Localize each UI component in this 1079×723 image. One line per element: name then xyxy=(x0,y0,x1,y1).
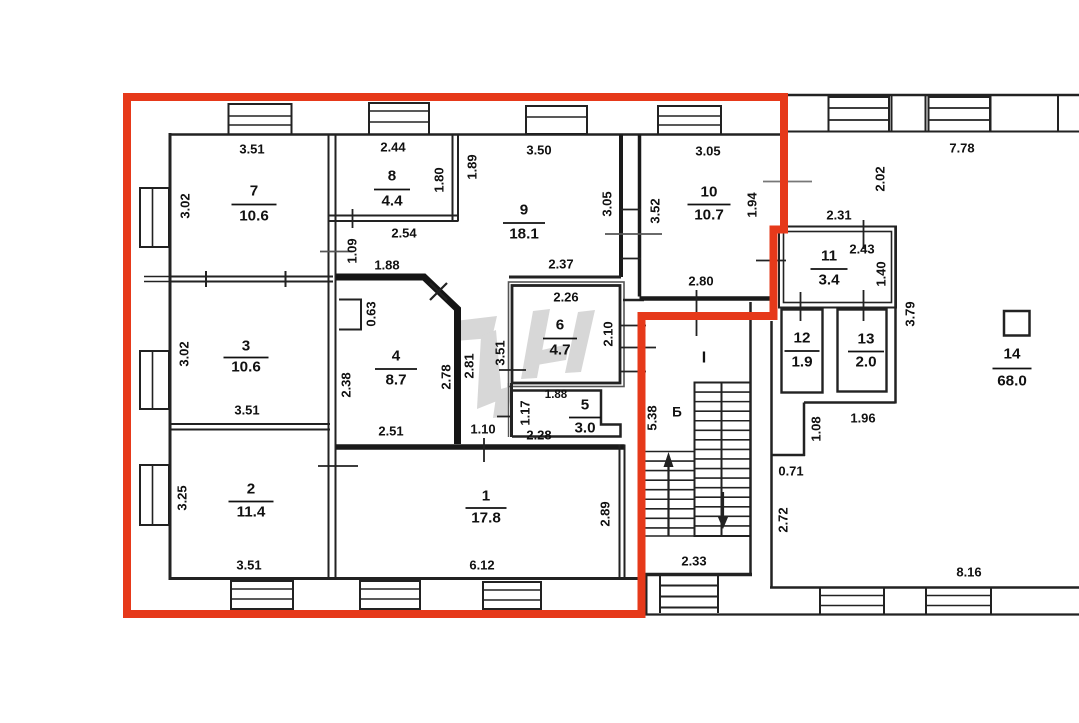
svg-text:2.02: 2.02 xyxy=(873,166,888,191)
svg-text:1.89: 1.89 xyxy=(465,154,480,179)
svg-text:3.51: 3.51 xyxy=(236,558,261,573)
svg-text:4.4: 4.4 xyxy=(381,193,403,210)
svg-text:3.4: 3.4 xyxy=(818,272,840,289)
svg-text:Б: Б xyxy=(672,405,682,420)
svg-text:3.51: 3.51 xyxy=(493,340,508,365)
svg-text:0.63: 0.63 xyxy=(364,301,379,326)
svg-text:2.81: 2.81 xyxy=(462,353,477,378)
svg-text:10: 10 xyxy=(701,184,718,201)
svg-text:3.02: 3.02 xyxy=(178,193,193,218)
svg-text:14: 14 xyxy=(1004,346,1021,363)
svg-text:8: 8 xyxy=(388,168,396,185)
svg-text:5.38: 5.38 xyxy=(645,405,660,430)
svg-text:17.8: 17.8 xyxy=(471,510,501,527)
svg-text:4.7: 4.7 xyxy=(549,342,570,359)
svg-text:2: 2 xyxy=(247,481,255,498)
svg-text:3.51: 3.51 xyxy=(234,403,259,418)
svg-text:2.43: 2.43 xyxy=(849,242,874,257)
svg-text:4: 4 xyxy=(392,348,401,365)
svg-text:1.17: 1.17 xyxy=(518,400,533,425)
svg-text:2.26: 2.26 xyxy=(553,290,578,305)
svg-text:3.05: 3.05 xyxy=(695,144,720,159)
svg-text:7: 7 xyxy=(250,183,258,200)
svg-text:1.40: 1.40 xyxy=(874,261,889,286)
svg-text:1.88: 1.88 xyxy=(374,258,399,273)
svg-text:1.88: 1.88 xyxy=(545,389,568,401)
svg-text:5: 5 xyxy=(581,397,590,414)
svg-text:7.78: 7.78 xyxy=(949,141,974,156)
svg-text:1: 1 xyxy=(482,488,491,505)
svg-text:3.02: 3.02 xyxy=(177,341,192,366)
svg-text:2.28: 2.28 xyxy=(526,428,551,443)
svg-text:2.38: 2.38 xyxy=(339,372,354,397)
svg-text:2.51: 2.51 xyxy=(378,424,403,439)
svg-text:1.94: 1.94 xyxy=(745,192,760,218)
svg-text:2.80: 2.80 xyxy=(688,274,713,289)
svg-text:1.10: 1.10 xyxy=(470,422,495,437)
svg-text:2.10: 2.10 xyxy=(601,321,616,346)
svg-text:0.71: 0.71 xyxy=(778,464,803,479)
svg-text:12: 12 xyxy=(794,330,811,347)
svg-text:1.96: 1.96 xyxy=(850,411,875,426)
svg-text:1.08: 1.08 xyxy=(809,416,824,441)
svg-text:1.9: 1.9 xyxy=(791,354,812,371)
svg-text:11: 11 xyxy=(821,248,838,265)
svg-text:3.0: 3.0 xyxy=(574,420,595,437)
svg-text:I: I xyxy=(702,350,706,367)
svg-text:1.80: 1.80 xyxy=(432,167,447,192)
svg-text:3: 3 xyxy=(242,338,250,355)
svg-text:10.6: 10.6 xyxy=(239,208,269,225)
svg-text:2.78: 2.78 xyxy=(439,364,454,389)
svg-text:2.72: 2.72 xyxy=(776,507,791,532)
svg-text:13: 13 xyxy=(858,331,875,348)
svg-text:8.7: 8.7 xyxy=(385,372,406,389)
svg-text:3.25: 3.25 xyxy=(175,485,190,510)
svg-text:2.44: 2.44 xyxy=(380,140,406,155)
svg-text:3.52: 3.52 xyxy=(648,198,663,223)
svg-text:8.16: 8.16 xyxy=(956,565,981,580)
svg-text:18.1: 18.1 xyxy=(509,226,539,243)
svg-text:3.50: 3.50 xyxy=(526,143,551,158)
svg-text:10.6: 10.6 xyxy=(231,359,261,376)
svg-text:6: 6 xyxy=(556,317,564,334)
svg-text:3.79: 3.79 xyxy=(903,301,918,326)
svg-text:3.51: 3.51 xyxy=(239,142,264,157)
svg-text:1.09: 1.09 xyxy=(345,238,360,263)
svg-text:2.37: 2.37 xyxy=(548,257,573,272)
svg-text:11.4: 11.4 xyxy=(237,504,266,521)
svg-text:2.31: 2.31 xyxy=(826,208,851,223)
svg-text:2.0: 2.0 xyxy=(855,354,876,371)
svg-text:10.7: 10.7 xyxy=(694,207,724,224)
svg-text:2.54: 2.54 xyxy=(391,226,417,241)
svg-text:2.33: 2.33 xyxy=(681,554,706,569)
svg-text:68.0: 68.0 xyxy=(997,373,1027,390)
svg-text:9: 9 xyxy=(520,202,528,219)
svg-text:6.12: 6.12 xyxy=(469,558,494,573)
svg-text:3.05: 3.05 xyxy=(600,191,615,216)
svg-text:2.89: 2.89 xyxy=(598,501,613,526)
